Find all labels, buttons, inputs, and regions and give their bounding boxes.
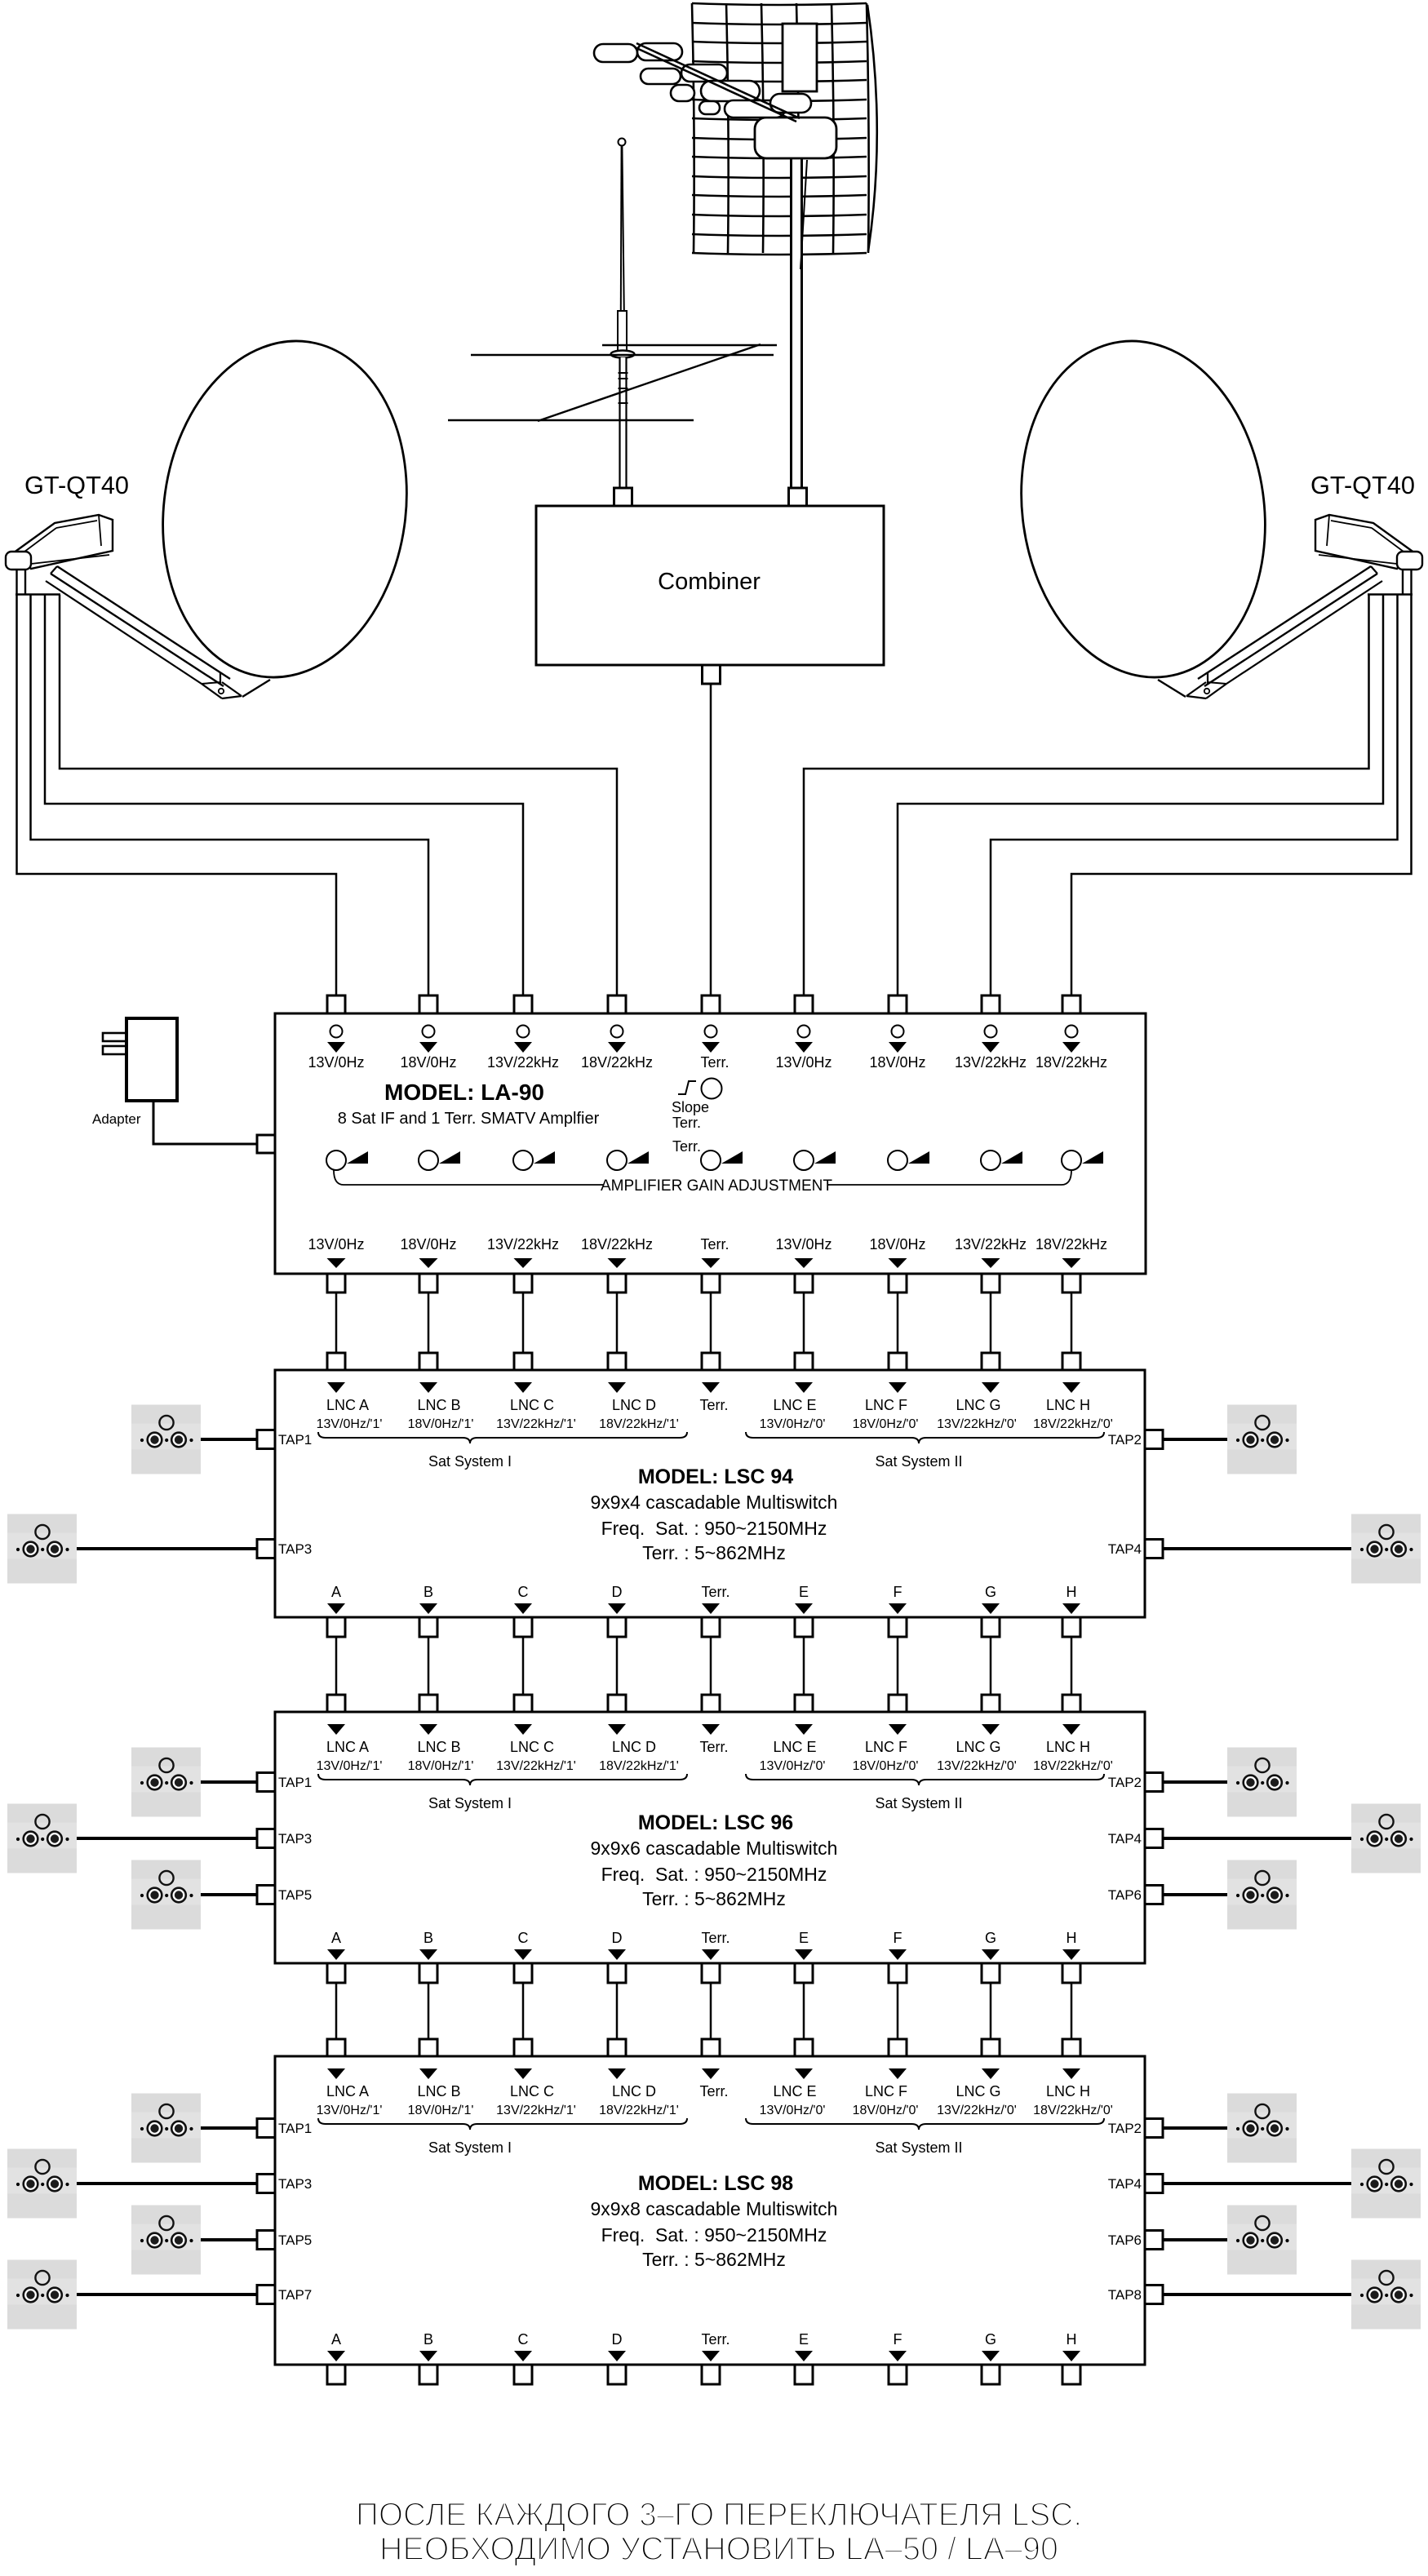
svg-text:Terr.: Terr. [700, 1236, 729, 1253]
svg-text:13V/0Hz/'1': 13V/0Hz/'1' [317, 1417, 383, 1431]
svg-text:9x9x6 cascadable Multiswitch: 9x9x6 cascadable Multiswitch [591, 1838, 838, 1859]
svg-text:Sat System II: Sat System II [875, 1453, 962, 1470]
svg-text:TAP4: TAP4 [1108, 1831, 1142, 1847]
svg-text:TAP1: TAP1 [278, 2121, 312, 2136]
svg-text:G: G [985, 1584, 996, 1600]
svg-text:TAP1: TAP1 [278, 1432, 312, 1448]
svg-text:18V/0Hz: 18V/0Hz [869, 1236, 925, 1253]
svg-text:A: A [331, 1584, 341, 1600]
svg-text:Terr.: Terr. [699, 1397, 728, 1413]
svg-text:LNC A: LNC A [326, 1397, 369, 1413]
svg-text:13V/0Hz/'0': 13V/0Hz/'0' [760, 1417, 826, 1431]
svg-text:GT-QT40: GT-QT40 [1310, 471, 1415, 499]
svg-text:НЕОБХОДИМО УСТАНОВИТЬ LA–50 /: НЕОБХОДИМО УСТАНОВИТЬ LA–50 / LA–90 [379, 2531, 1058, 2567]
svg-text:LNC E: LNC E [773, 2083, 816, 2099]
svg-text:H: H [1067, 2331, 1077, 2348]
svg-text:18V/0Hz: 18V/0Hz [400, 1054, 456, 1071]
svg-text:13V/22kHz: 13V/22kHz [955, 1054, 1027, 1071]
svg-text:Terr. : 5~862MHz: Terr. : 5~862MHz [642, 1542, 786, 1563]
svg-text:F: F [894, 1584, 902, 1600]
svg-text:TAP4: TAP4 [1108, 2176, 1142, 2192]
svg-text:LNC A: LNC A [326, 2083, 369, 2099]
svg-text:Terr.: Terr. [672, 1138, 701, 1155]
svg-text:G: G [985, 2331, 996, 2348]
svg-text:18V/22kHz/'0': 18V/22kHz/'0' [1033, 1759, 1113, 1773]
svg-text:E: E [799, 1930, 809, 1946]
svg-text:13V/0Hz/'1': 13V/0Hz/'1' [317, 1759, 383, 1773]
svg-text:9x9x4 cascadable Multiswitch: 9x9x4 cascadable Multiswitch [591, 1492, 838, 1513]
svg-text:LNC D: LNC D [612, 1739, 656, 1755]
svg-text:LNC B: LNC B [417, 2083, 460, 2099]
svg-text:TAP5: TAP5 [278, 2232, 312, 2248]
svg-text:LNC F: LNC F [865, 2083, 907, 2099]
svg-text:MODEL: LSC 96: MODEL: LSC 96 [638, 1811, 793, 1834]
svg-text:13V/22kHz/'1': 13V/22kHz/'1' [496, 2104, 576, 2117]
svg-text:LNC E: LNC E [773, 1739, 816, 1755]
svg-text:9x9x8 cascadable Multiswitch: 9x9x8 cascadable Multiswitch [591, 2198, 838, 2219]
svg-text:13V/22kHz: 13V/22kHz [487, 1236, 559, 1253]
svg-text:TAP2: TAP2 [1108, 1775, 1142, 1790]
svg-text:Sat System I: Sat System I [428, 1453, 512, 1470]
svg-text:18V/0Hz: 18V/0Hz [400, 1236, 456, 1253]
svg-text:18V/0Hz/'0': 18V/0Hz/'0' [853, 1417, 919, 1431]
svg-text:18V/22kHz/'1': 18V/22kHz/'1' [599, 1759, 679, 1773]
svg-text:Terr.: Terr. [701, 1930, 730, 1946]
svg-text:18V/0Hz/'1': 18V/0Hz/'1' [408, 1417, 474, 1431]
svg-text:LNC G: LNC G [956, 1739, 1000, 1755]
svg-text:18V/0Hz/'1': 18V/0Hz/'1' [408, 2104, 474, 2117]
svg-text:TAP4: TAP4 [1108, 1541, 1142, 1557]
svg-text:D: D [612, 1584, 623, 1600]
svg-text:Terr. : 5~862MHz: Terr. : 5~862MHz [642, 2249, 786, 2270]
svg-text:E: E [799, 2331, 809, 2348]
svg-text:A: A [331, 2331, 341, 2348]
svg-text:18V/22kHz: 18V/22kHz [1036, 1054, 1107, 1071]
svg-text:E: E [799, 1584, 809, 1600]
svg-text:Sat System II: Sat System II [875, 1795, 962, 1811]
svg-text:LNC G: LNC G [956, 2083, 1000, 2099]
svg-text:LNC A: LNC A [326, 1739, 369, 1755]
svg-text:AMPLIFIER GAIN ADJUSTMENT: AMPLIFIER GAIN ADJUSTMENT [601, 1177, 832, 1195]
svg-text:18V/0Hz/'0': 18V/0Hz/'0' [853, 1759, 919, 1773]
svg-text:MODEL: LSC 94: MODEL: LSC 94 [638, 1465, 793, 1488]
svg-text:18V/0Hz/'1': 18V/0Hz/'1' [408, 1759, 474, 1773]
svg-text:13V/0Hz: 13V/0Hz [775, 1054, 832, 1071]
svg-text:LNC B: LNC B [417, 1397, 460, 1413]
svg-text:ПОСЛЕ КАЖДОГО 3–ГО ПЕРЕКЛЮЧАТЕ: ПОСЛЕ КАЖДОГО 3–ГО ПЕРЕКЛЮЧАТЕЛЯ LSC, [356, 2497, 1082, 2533]
svg-text:A: A [331, 1930, 341, 1946]
svg-text:Freq. Sat. : 950~2150MHz: Freq. Sat. : 950~2150MHz [601, 2224, 827, 2246]
svg-text:D: D [612, 2331, 623, 2348]
svg-text:LNC D: LNC D [612, 1397, 656, 1413]
svg-text:Freq. Sat. : 950~2150MHz: Freq. Sat. : 950~2150MHz [601, 1864, 827, 1885]
svg-text:18V/22kHz: 18V/22kHz [581, 1054, 653, 1071]
svg-text:Terr.: Terr. [699, 1739, 728, 1755]
svg-text:TAP5: TAP5 [278, 1887, 312, 1903]
svg-text:18V/22kHz/'1': 18V/22kHz/'1' [599, 1417, 679, 1431]
svg-text:13V/22kHz/'0': 13V/22kHz/'0' [937, 2104, 1017, 2117]
svg-text:H: H [1067, 1584, 1077, 1600]
svg-text:18V/22kHz: 18V/22kHz [1036, 1236, 1107, 1253]
svg-text:Terr.: Terr. [672, 1115, 701, 1131]
svg-text:F: F [894, 1930, 902, 1946]
svg-text:Sat System II: Sat System II [875, 2139, 962, 2156]
svg-text:LNC D: LNC D [612, 2083, 656, 2099]
svg-text:B: B [424, 1930, 433, 1946]
svg-text:13V/0Hz: 13V/0Hz [308, 1236, 364, 1253]
svg-text:B: B [424, 2331, 433, 2348]
svg-text:Sat System I: Sat System I [428, 2139, 512, 2156]
svg-text:13V/0Hz/'0': 13V/0Hz/'0' [760, 1759, 826, 1773]
svg-text:Terr.: Terr. [701, 2331, 730, 2348]
svg-text:Slope: Slope [672, 1099, 709, 1115]
svg-text:LNC H: LNC H [1046, 1397, 1090, 1413]
svg-text:Adapter: Adapter [92, 1111, 141, 1127]
svg-text:TAP8: TAP8 [1108, 2287, 1142, 2303]
svg-text:13V/0Hz/'0': 13V/0Hz/'0' [760, 2104, 826, 2117]
svg-text:B: B [424, 1584, 433, 1600]
svg-text:TAP6: TAP6 [1108, 1887, 1142, 1903]
svg-text:C: C [518, 1584, 529, 1600]
svg-text:13V/22kHz/'1': 13V/22kHz/'1' [496, 1417, 576, 1431]
svg-text:18V/0Hz: 18V/0Hz [869, 1054, 925, 1071]
svg-text:C: C [518, 1930, 529, 1946]
svg-text:18V/22kHz/'0': 18V/22kHz/'0' [1033, 1417, 1113, 1431]
svg-text:Sat System I: Sat System I [428, 1795, 512, 1811]
svg-text:LNC H: LNC H [1046, 1739, 1090, 1755]
svg-text:18V/22kHz/'0': 18V/22kHz/'0' [1033, 2104, 1113, 2117]
svg-text:TAP6: TAP6 [1108, 2232, 1142, 2248]
svg-text:18V/0Hz/'0': 18V/0Hz/'0' [853, 2104, 919, 2117]
svg-text:13V/22kHz: 13V/22kHz [955, 1236, 1027, 1253]
svg-text:F: F [894, 2331, 902, 2348]
svg-text:TAP2: TAP2 [1108, 2121, 1142, 2136]
svg-text:LNC B: LNC B [417, 1739, 460, 1755]
svg-text:D: D [612, 1930, 623, 1946]
svg-text:Terr.: Terr. [700, 1054, 729, 1071]
svg-text:MODEL: LSC 98: MODEL: LSC 98 [638, 2172, 793, 2195]
svg-text:LNC C: LNC C [510, 1739, 554, 1755]
svg-text:Terr.: Terr. [699, 2083, 728, 2099]
svg-text:LNC F: LNC F [865, 1397, 907, 1413]
svg-text:MODEL: LA-90: MODEL: LA-90 [384, 1080, 544, 1105]
svg-text:TAP1: TAP1 [278, 1775, 312, 1790]
svg-text:TAP3: TAP3 [278, 2176, 312, 2192]
svg-text:LNC G: LNC G [956, 1397, 1000, 1413]
svg-text:LNC H: LNC H [1046, 2083, 1090, 2099]
svg-text:TAP7: TAP7 [278, 2287, 312, 2303]
svg-text:Freq. Sat. : 950~2150MHz: Freq. Sat. : 950~2150MHz [601, 1518, 827, 1539]
svg-text:H: H [1067, 1930, 1077, 1946]
svg-text:Combiner: Combiner [658, 569, 761, 595]
svg-text:8 Sat IF and 1 Terr. SMATV Amp: 8 Sat IF and 1 Terr. SMATV Amplfier [338, 1110, 600, 1128]
svg-text:TAP3: TAP3 [278, 1541, 312, 1557]
svg-text:LNC C: LNC C [510, 2083, 554, 2099]
svg-text:13V/22kHz/'0': 13V/22kHz/'0' [937, 1417, 1017, 1431]
svg-text:TAP2: TAP2 [1108, 1432, 1142, 1448]
svg-text:GT-QT40: GT-QT40 [24, 471, 129, 499]
svg-text:13V/22kHz/'0': 13V/22kHz/'0' [937, 1759, 1017, 1773]
svg-text:TAP3: TAP3 [278, 1831, 312, 1847]
svg-text:LNC F: LNC F [865, 1739, 907, 1755]
svg-text:G: G [985, 1930, 996, 1946]
svg-text:13V/0Hz/'1': 13V/0Hz/'1' [317, 2104, 383, 2117]
svg-text:LNC E: LNC E [773, 1397, 816, 1413]
svg-text:Terr. : 5~862MHz: Terr. : 5~862MHz [642, 1888, 786, 1909]
svg-text:18V/22kHz/'1': 18V/22kHz/'1' [599, 2104, 679, 2117]
svg-text:Terr.: Terr. [701, 1584, 730, 1600]
svg-text:C: C [518, 2331, 529, 2348]
svg-text:18V/22kHz: 18V/22kHz [581, 1236, 653, 1253]
svg-text:13V/0Hz: 13V/0Hz [308, 1054, 364, 1071]
svg-text:13V/22kHz/'1': 13V/22kHz/'1' [496, 1759, 576, 1773]
svg-text:13V/22kHz: 13V/22kHz [487, 1054, 559, 1071]
svg-text:13V/0Hz: 13V/0Hz [775, 1236, 832, 1253]
svg-text:LNC C: LNC C [510, 1397, 554, 1413]
